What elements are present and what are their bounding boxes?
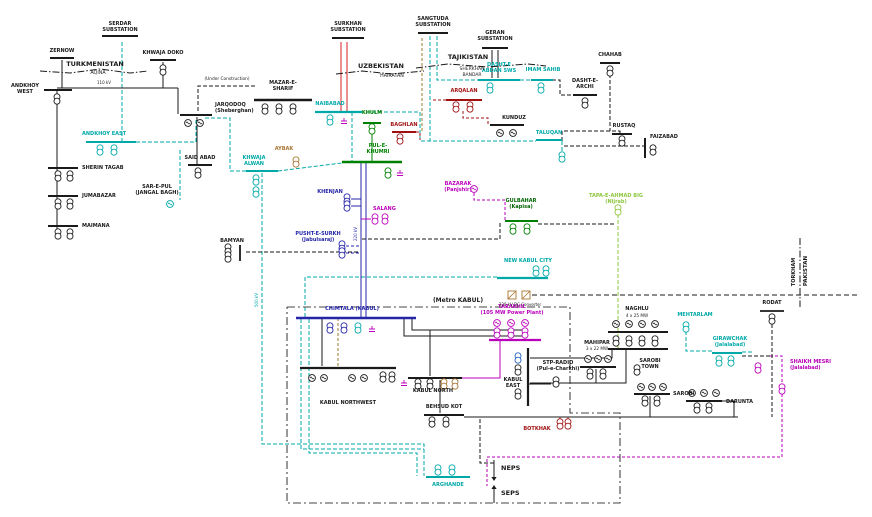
transformer-icon (380, 372, 386, 382)
transformer-icon (253, 187, 259, 197)
station-label-naibabad: NAIBABAD (315, 101, 344, 107)
station-label-kunduz: KUNDUZ (502, 115, 526, 121)
station-label-line: IMAM SAHIB (526, 67, 561, 73)
station-label-salang: SALANG (373, 206, 396, 212)
transformer-icon (565, 419, 571, 429)
annotation-text: 500 kV (254, 293, 259, 307)
station-label-line: BAMYAN (220, 238, 244, 244)
generator-icon (522, 320, 529, 327)
station-label-gulbahar: GULBAHAR(Kapisa) (506, 198, 537, 210)
transformer-icon (111, 145, 117, 155)
annotation-text: SEPS (501, 489, 520, 497)
station-label-line: KHENJAN (317, 189, 343, 195)
station-label-naghlu: NAGHLU (625, 306, 648, 312)
generator-icon (639, 321, 646, 328)
transformer-icon (397, 134, 403, 144)
converter-icon (522, 291, 530, 299)
transformer-icon (327, 323, 333, 333)
transformer-icon (543, 266, 549, 276)
transformer-icon (429, 417, 435, 427)
station-label-line: ABDAN SWS (482, 68, 517, 74)
transformer-icon (654, 396, 660, 406)
station-label-taluqan: TALUQAN (536, 130, 562, 136)
transformer-icon (553, 377, 559, 387)
station-label-line: SUBSTATION (477, 36, 512, 42)
station-label-line: ALWAN (244, 161, 264, 167)
station-label-faizabad: FAIZABAD (650, 134, 678, 140)
transformer-icon (652, 336, 658, 346)
transformer-icon (389, 372, 395, 382)
transformer-icon (341, 323, 347, 333)
station-label-line: SAID ABAD (185, 155, 216, 161)
transformer-icon (607, 66, 613, 76)
station-label-line: KHULM (362, 110, 382, 116)
transformer-icon (67, 171, 73, 181)
station-label-line: (105 MW Power Plant) (481, 310, 544, 316)
generator-icon (660, 384, 667, 391)
station-label-said-abad: SAID ABAD (185, 155, 216, 161)
annotation-text: SHERKHAN (460, 66, 485, 72)
transformer-icon (515, 365, 521, 375)
station-label-bazarak: BAZARAK(Panjshir) (444, 181, 472, 193)
generator-icon (361, 375, 368, 382)
station-label-line: (Jalalabad) (715, 342, 746, 348)
annotation-text: 220 kV DC Converter (499, 302, 542, 307)
station-label-khulm: KHULM (362, 110, 382, 116)
transformer-icon (600, 369, 606, 379)
generator-icon (626, 321, 633, 328)
station-label-sarobi: SAROBITOWN (639, 358, 660, 370)
transformer-icon (779, 384, 785, 394)
annotation-text: BANDAR (462, 72, 481, 78)
transformer-icon (453, 102, 459, 112)
transformer-icon (615, 205, 621, 215)
station-label-line: KABUL NORTHWEST (320, 400, 377, 406)
annotation-text: HAIRATAN (380, 73, 404, 79)
station-label-pul-e: PUL-E-KHUMRI (367, 143, 390, 155)
station-label-line: RODAT (762, 300, 782, 306)
transformer-icon (769, 314, 775, 324)
station-label-baghlan: BAGHLAN (390, 122, 417, 128)
transformer-icon (650, 145, 656, 155)
generator-icon (197, 120, 204, 127)
station-label-aybak: AYBAK (275, 146, 295, 152)
station-label-chimtala-kabul: CHIMTALA (KABUL) (325, 306, 379, 312)
station-label-line: SHARIF (273, 86, 294, 92)
transformer-icon (443, 417, 449, 427)
transformer-icon (369, 124, 375, 134)
station-label-arghande: ARGHANDE (432, 482, 464, 488)
station-label-surkhan: SURKHANSUBSTATION (330, 21, 365, 33)
station-label-line: TOWN (641, 364, 658, 370)
transformer-icon (755, 363, 761, 373)
station-label-line: (Kapisa) (509, 204, 532, 210)
transformer-icon (619, 136, 625, 146)
generator-icon (497, 130, 504, 137)
station-label-rodat: RODAT (762, 300, 782, 306)
annotation-text: 220 kV (353, 227, 358, 241)
station-label-line: (Nijrab) (605, 199, 627, 205)
transformer-icon (97, 145, 103, 155)
transformer-icon (467, 102, 473, 112)
generator-icon (595, 356, 602, 363)
station-label-line: SUBSTATION (415, 22, 450, 28)
transformer-icon (276, 104, 282, 114)
station-label-sarobi: SAROBI (673, 391, 694, 397)
transformer-icon (706, 403, 712, 413)
transformer-icon (160, 65, 166, 75)
station-label-line: SHERIN TAGAB (82, 165, 124, 171)
generator-icon (652, 321, 659, 328)
transformer-icon (55, 229, 61, 239)
station-label-rustaq: RUSTAQ (613, 123, 636, 129)
station-label-line: KHUMRI (367, 149, 390, 155)
station-label-line: MAIMANA (82, 223, 110, 229)
annotation-text: (Under Construction) (204, 76, 249, 82)
station-label-line: RUSTAQ (613, 123, 636, 129)
annotation-text: 110 kV (97, 80, 111, 85)
transformer-icon (67, 229, 73, 239)
transformer-icon (515, 389, 521, 399)
station-label-khenjan: KHENJAN (317, 189, 343, 195)
transformer-icon (522, 328, 528, 338)
station-label-mazar-e: MAZAR-E-SHARIF (269, 80, 297, 92)
station-label-line: (Pul-e-Charkhi) (537, 366, 580, 372)
station-label-line: ANDKHOY EAST (82, 131, 127, 137)
transformer-icon (626, 336, 632, 346)
station-label-line: NEW KABUL CITY (504, 258, 552, 264)
station-label-pusht-e-surkh: PUSHT-E-SURKH(Jabulsaraj) (295, 231, 340, 243)
station-label-line: SUBSTATION (102, 27, 137, 33)
annotation-text: TURKMENISTAN (66, 60, 124, 68)
annotation-text: PAKISTAN (803, 255, 809, 286)
transformer-icon (728, 356, 734, 366)
station-label-maimana: MAIMANA (82, 223, 110, 229)
transformer-icon (327, 115, 333, 125)
transformer-icon (538, 83, 544, 93)
annotation-text: 3 x 22 MW (586, 346, 608, 351)
station-label-line: (Jalalabad) (790, 365, 821, 371)
transformer-icon (508, 328, 514, 338)
station-label-line: SAROBI (673, 391, 694, 397)
station-label-line: (Panjshir) (444, 187, 471, 193)
transformer-icon (634, 365, 640, 375)
annotation-text: NEPS (501, 464, 521, 472)
transformer-icon (225, 252, 231, 262)
transformer-icon (533, 266, 539, 276)
station-label-andkhoy-east: ANDKHOY EAST (82, 131, 127, 137)
station-label-botkhak: BOTKHAK (523, 426, 551, 432)
station-label-line: NAIBABAD (315, 101, 344, 107)
transformer-icon (253, 175, 259, 185)
annotation-text: AQINA (90, 70, 106, 76)
transformer-icon (262, 104, 268, 114)
station-label-mehtarlam: MEHTARLAM (677, 312, 712, 318)
station-label-line: BEHSUD KOT (426, 404, 463, 410)
station-label-jumabazar: JUMABAZAR (81, 193, 116, 199)
transformer-icon (290, 104, 296, 114)
station-label-line: BAGHLAN (390, 122, 417, 128)
generator-icon (649, 384, 656, 391)
annotation-text: (Metro KABUL) (433, 297, 483, 304)
transformer-icon (55, 199, 61, 209)
diagram-canvas: SERDARSUBSTATIONZERNOWKHWAJA DOKOANDKHOY… (0, 0, 872, 517)
transformer-icon (449, 465, 455, 475)
generator-icon (494, 320, 501, 327)
transformer-icon (67, 199, 73, 209)
station-label-khwaja-doko: KHWAJA DOKO (143, 50, 184, 56)
station-label-imam-sahib: IMAM SAHIB (526, 67, 561, 73)
station-label-new-kabul-city: NEW KABUL CITY (504, 258, 552, 264)
station-label-line: KABUL NORTH (413, 388, 453, 394)
station-label-line: ARQALAN (450, 88, 477, 94)
transformer-icon (293, 157, 299, 167)
transformer-icon (385, 168, 391, 178)
transformer-icon (372, 214, 378, 224)
transformer-icon (559, 152, 565, 162)
transformer-icon (487, 83, 493, 93)
station-label-darunta: DARUNTA (726, 399, 753, 405)
station-label-line: TALUQAN (536, 130, 562, 136)
transformer-icon (435, 465, 441, 475)
converter-icon (508, 291, 516, 299)
station-label-sherin-tagab: SHERIN TAGAB (82, 165, 124, 171)
generator-icon (585, 356, 592, 363)
annotation-text: TORKHAM (791, 258, 797, 286)
station-label-kabul-northwest: KABUL NORTHWEST (320, 400, 377, 406)
generator-icon (510, 130, 517, 137)
annotation-text: UZBEKISTAN (358, 62, 404, 70)
station-label-line: MEHTARLAM (677, 312, 712, 318)
station-label-bamyan: BAMYAN (220, 238, 244, 244)
transformer-icon (694, 403, 700, 413)
generator-icon (613, 321, 620, 328)
transformer-icon (557, 419, 563, 429)
station-label-zernow: ZERNOW (50, 48, 75, 54)
station-label-behsud-kot: BEHSUD KOT (426, 404, 463, 410)
station-label-line: FAIZABAD (650, 134, 678, 140)
generator-icon (701, 390, 708, 397)
transformer-icon (54, 94, 60, 104)
transformer-icon (642, 396, 648, 406)
station-label-line: SALANG (373, 206, 396, 212)
station-label-line: NAGHLU (625, 306, 648, 312)
transformer-icon (716, 356, 722, 366)
transformer-icon (494, 328, 500, 338)
power-grid-diagram: SERDARSUBSTATIONZERNOWKHWAJA DOKOANDKHOY… (0, 0, 872, 517)
station-label-khwaja: KHWAJAALWAN (243, 155, 266, 167)
transformer-icon (339, 248, 345, 258)
station-label-line: (JANGAL BAGH) (135, 190, 178, 196)
station-label-line: ZERNOW (50, 48, 75, 54)
transformer-icon (639, 336, 645, 346)
station-label-line: SUBSTATION (330, 27, 365, 33)
transformer-icon (382, 214, 388, 224)
transformer-icon (355, 323, 361, 333)
station-label-chahab: CHAHAB (598, 52, 622, 58)
station-label-kabul-north: KABUL NORTH (413, 388, 453, 394)
generator-icon (309, 375, 316, 382)
annotation-text: 4 x 25 MW (626, 313, 648, 318)
transformer-icon (55, 171, 61, 181)
station-label-line: CHIMTALA (KABUL) (325, 306, 379, 312)
background (0, 0, 872, 517)
station-label-sangtuda: SANGTUDASUBSTATION (415, 16, 450, 28)
generator-icon (638, 384, 645, 391)
station-label-line: KHWAJA DOKO (143, 50, 184, 56)
transformer-icon (524, 224, 530, 234)
station-label-line: CHAHAB (598, 52, 622, 58)
station-label-girawchak: GIRAWCHAK(Jalalabad) (713, 336, 749, 348)
transformer-icon (510, 224, 516, 234)
station-label-line: AYBAK (275, 146, 295, 152)
annotation-text: TAJIKISTAN (448, 53, 488, 61)
station-label-line: (Sheberghan) (215, 108, 254, 114)
generator-icon (167, 201, 174, 208)
station-label-line: (Jabulsaraj) (302, 237, 335, 243)
station-label-line: WEST (17, 89, 34, 95)
generator-icon (349, 375, 356, 382)
transformer-icon (582, 98, 588, 108)
station-label-line: JUMABAZAR (81, 193, 116, 199)
station-label-arqalan: ARQALAN (450, 88, 477, 94)
station-label-stp-radio: STP-RADIO(Pul-e-Charkhi) (537, 360, 580, 372)
station-label-line: EAST (506, 383, 521, 389)
station-label-line: ARGHANDE (432, 482, 464, 488)
transformer-icon (587, 369, 593, 379)
generator-icon (185, 120, 192, 127)
generator-icon (508, 320, 515, 327)
station-label-line: BOTKHAK (523, 426, 551, 432)
transformer-icon (515, 353, 521, 363)
transformer-icon (613, 336, 619, 346)
station-label-line: DARUNTA (726, 399, 753, 405)
station-label-line: KUNDUZ (502, 115, 526, 121)
transformer-icon (195, 168, 201, 178)
station-label-line: ARCHI (576, 84, 594, 90)
generator-icon (321, 375, 328, 382)
transformer-icon (344, 201, 350, 211)
generator-icon (605, 356, 612, 363)
generator-icon (713, 390, 720, 397)
transformer-icon (683, 322, 689, 332)
